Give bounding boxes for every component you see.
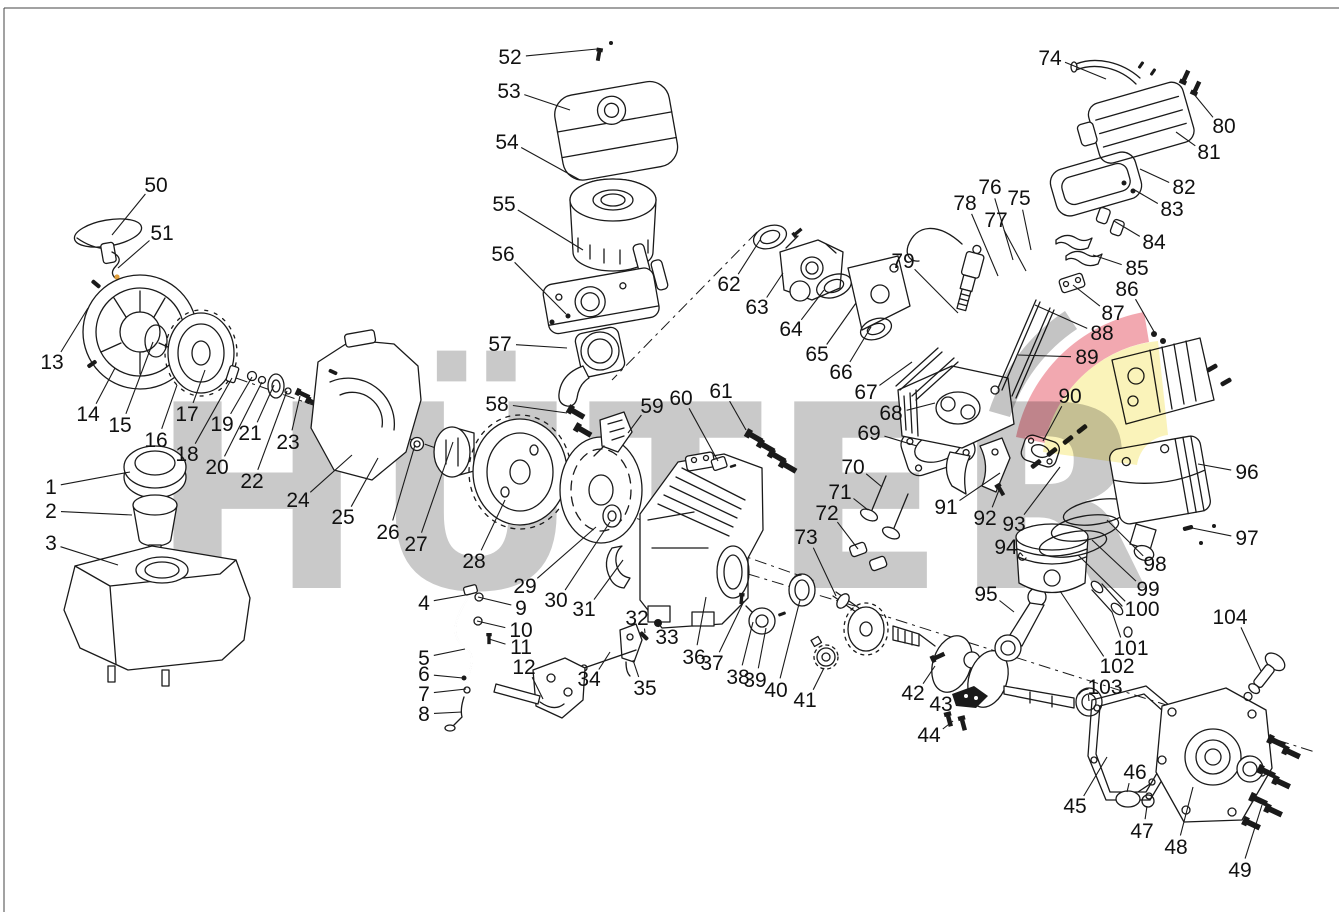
part-number-77: 77 — [984, 209, 1007, 232]
part-number-75: 75 — [1007, 187, 1030, 210]
part-number-102: 102 — [1099, 655, 1134, 678]
part-number-47: 47 — [1130, 820, 1153, 843]
part-number-74: 74 — [1038, 47, 1062, 70]
part-number-25: 25 — [331, 506, 354, 529]
part-number-83: 83 — [1160, 198, 1183, 221]
part-number-30: 30 — [544, 589, 567, 612]
part-number-53: 53 — [497, 80, 520, 103]
part-number-90: 90 — [1058, 385, 1081, 408]
leader-line-7 — [434, 689, 466, 693]
leader-line-52 — [526, 49, 597, 56]
leader-line-77 — [1004, 230, 1026, 271]
carb-gasket-outer — [750, 221, 789, 253]
leader-line-63 — [767, 273, 783, 298]
part-number-44: 44 — [917, 724, 941, 747]
part-number-79: 79 — [891, 250, 914, 273]
part-number-50: 50 — [144, 174, 167, 197]
part-number-41: 41 — [793, 689, 816, 712]
part-number-15: 15 — [108, 414, 131, 437]
part-number-18: 18 — [175, 443, 198, 466]
part-number-51: 51 — [150, 222, 173, 245]
crankcase-cover — [1156, 688, 1272, 822]
part-number-39: 39 — [743, 669, 766, 692]
part-number-72: 72 — [815, 502, 838, 525]
leader-line-1 — [61, 472, 130, 485]
part-number-98: 98 — [1143, 553, 1166, 576]
leader-line-79 — [915, 269, 958, 313]
leader-line-62 — [738, 240, 760, 274]
leader-line-8 — [434, 712, 462, 713]
part-number-91: 91 — [934, 496, 957, 519]
part-number-73: 73 — [794, 526, 817, 549]
control-bracket — [494, 658, 585, 718]
valve-cover — [1072, 61, 1202, 170]
part-number-82: 82 — [1172, 176, 1195, 199]
part-number-9: 9 — [515, 597, 527, 620]
part-number-84: 84 — [1142, 231, 1166, 254]
leader-line-47 — [1145, 806, 1147, 819]
leader-line-74 — [1065, 62, 1106, 79]
leader-line-5 — [434, 649, 465, 655]
part-number-45: 45 — [1063, 795, 1086, 818]
part-number-85: 85 — [1125, 257, 1148, 280]
leader-line-2 — [61, 512, 132, 515]
part-number-57: 57 — [488, 333, 511, 356]
fan-washer — [603, 505, 621, 527]
leader-line-87 — [1073, 285, 1100, 306]
valve-cover-gasket — [1047, 149, 1145, 219]
part-number-95: 95 — [974, 583, 997, 606]
part-number-17: 17 — [175, 403, 198, 426]
part-number-70: 70 — [841, 456, 864, 479]
part-number-67: 67 — [854, 381, 877, 404]
part-number-23: 23 — [276, 431, 299, 454]
part-number-94: 94 — [994, 536, 1018, 559]
leader-line-51 — [118, 241, 150, 269]
part-number-27: 27 — [404, 533, 427, 556]
part-number-13: 13 — [40, 351, 63, 374]
part-number-66: 66 — [829, 361, 852, 384]
part-number-61: 61 — [709, 380, 732, 403]
spark-plug — [952, 243, 986, 311]
part-number-19: 19 — [210, 413, 233, 436]
leader-line-35 — [633, 660, 639, 677]
part-number-46: 46 — [1123, 761, 1146, 784]
oil-dipstick — [1237, 650, 1288, 707]
part-number-63: 63 — [745, 296, 768, 319]
part-number-16: 16 — [144, 429, 167, 452]
part-number-4: 4 — [418, 592, 430, 615]
part-number-89: 89 — [1075, 346, 1098, 369]
part-number-42: 42 — [901, 682, 924, 705]
part-number-55: 55 — [492, 193, 515, 216]
part-number-37: 37 — [700, 652, 723, 675]
part-number-60: 60 — [669, 387, 692, 410]
part-number-21: 21 — [238, 422, 261, 445]
part-number-68: 68 — [879, 402, 902, 425]
spark-plug-lead — [907, 228, 962, 261]
part-number-86: 86 — [1115, 278, 1138, 301]
part-number-104: 104 — [1212, 606, 1247, 629]
part-number-93: 93 — [1002, 513, 1025, 536]
part-number-100: 100 — [1124, 598, 1159, 621]
part-number-54: 54 — [495, 131, 519, 154]
leader-line-49 — [1245, 805, 1262, 859]
part-number-24: 24 — [286, 489, 310, 512]
leader-line-82 — [1140, 169, 1169, 183]
part-number-64: 64 — [779, 318, 803, 341]
fuel-tank — [64, 546, 250, 686]
part-number-56: 56 — [491, 243, 514, 266]
part-number-81: 81 — [1197, 141, 1220, 164]
part-number-103: 103 — [1087, 676, 1122, 699]
starter-cup — [434, 427, 474, 477]
leader-line-104 — [1241, 627, 1261, 671]
part-number-40: 40 — [764, 679, 787, 702]
part-number-12: 12 — [512, 656, 535, 679]
part-number-80: 80 — [1212, 115, 1235, 138]
parts-diagram-page: HÜTER — [0, 0, 1339, 912]
leader-line-6 — [434, 675, 463, 678]
part-number-2: 2 — [45, 500, 57, 523]
part-number-76: 76 — [978, 176, 1001, 199]
part-number-43: 43 — [929, 693, 952, 716]
part-number-92: 92 — [973, 507, 996, 530]
muffler-bolts — [1182, 524, 1216, 545]
part-number-69: 69 — [857, 422, 880, 445]
part-number-31: 31 — [572, 598, 595, 621]
part-number-34: 34 — [577, 668, 601, 691]
part-number-49: 49 — [1228, 859, 1251, 882]
part-number-1: 1 — [45, 476, 57, 499]
part-number-3: 3 — [45, 532, 57, 555]
part-number-59: 59 — [640, 395, 663, 418]
part-number-71: 71 — [828, 481, 851, 504]
leader-line-34 — [599, 652, 610, 670]
part-number-58: 58 — [485, 393, 508, 416]
part-number-35: 35 — [633, 677, 656, 700]
part-number-62: 62 — [717, 273, 740, 296]
cooling-fan — [560, 437, 642, 543]
part-number-78: 78 — [953, 192, 976, 215]
part-number-28: 28 — [462, 550, 485, 573]
part-number-29: 29 — [513, 575, 536, 598]
part-number-88: 88 — [1090, 322, 1113, 345]
part-number-22: 22 — [240, 470, 263, 493]
leader-line-57 — [516, 345, 567, 348]
part-number-52: 52 — [498, 46, 521, 69]
part-number-8: 8 — [418, 703, 430, 726]
part-number-32: 32 — [625, 607, 648, 630]
part-number-26: 26 — [376, 521, 399, 544]
leader-line-41 — [813, 668, 824, 690]
part-number-20: 20 — [205, 456, 228, 479]
leader-line-65 — [827, 303, 856, 345]
carburetor — [780, 227, 843, 301]
part-number-65: 65 — [805, 343, 828, 366]
camshaft-bearing — [789, 574, 815, 606]
flywheel-nut — [411, 438, 424, 451]
air-filter-cover — [552, 78, 681, 183]
part-number-96: 96 — [1235, 461, 1258, 484]
leader-line-80 — [1193, 93, 1213, 117]
leader-line-75 — [1023, 210, 1031, 250]
breather-tube — [1071, 60, 1140, 84]
part-number-33: 33 — [655, 626, 678, 649]
exploded-diagram-canvas: HÜTER — [0, 0, 1339, 912]
part-number-14: 14 — [76, 403, 100, 426]
leader-line-97 — [1192, 528, 1231, 536]
part-number-97: 97 — [1235, 527, 1258, 550]
part-number-48: 48 — [1164, 836, 1187, 859]
starter-handle — [72, 214, 143, 264]
air-filter-cover-screw — [595, 41, 613, 61]
